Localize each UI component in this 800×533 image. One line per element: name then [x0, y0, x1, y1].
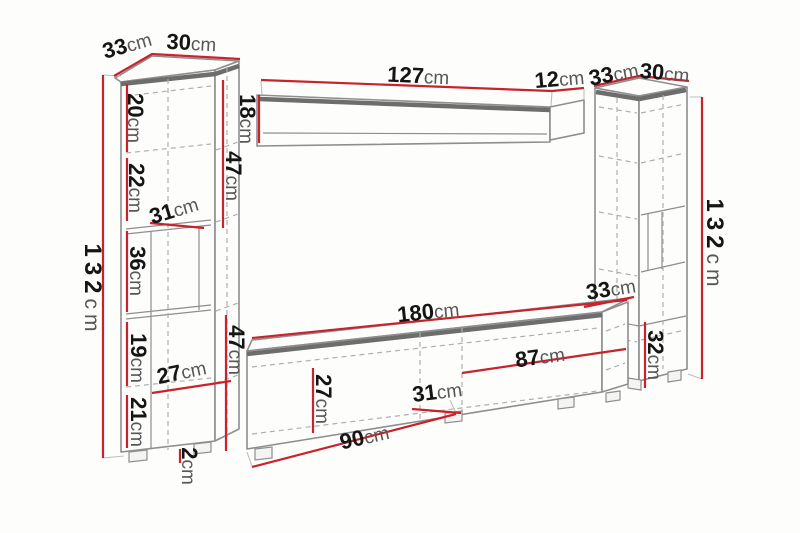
diagram-canvas: 33cm 30cm 132cm 20cm 22cm 31cm 36cm 19cm…	[0, 0, 800, 533]
furniture-dimension-diagram: 33cm 30cm 132cm 20cm 22cm 31cm 36cm 19cm…	[0, 0, 800, 533]
dim-left-cabinet-plinth: 2cm	[177, 447, 202, 485]
wall-shelf-drawing	[257, 95, 584, 146]
dim-wall-shelf-depth: 12cm	[533, 64, 585, 93]
dim-left-cabinet-section-5: 21cm	[126, 397, 151, 447]
dim-right-cabinet-width-top: 30cm	[639, 58, 691, 87]
dim-left-cabinet-upper-section: 47cm	[221, 151, 246, 201]
tv-stand-side-face	[602, 302, 628, 392]
dim-left-cabinet-width-top: 30cm	[166, 29, 217, 57]
dim-left-cabinet-section-3: 36cm	[125, 246, 150, 296]
dim-right-cabinet-height: 132cm	[701, 198, 728, 291]
dim-left-cabinet-section-1: 20cm	[123, 93, 148, 143]
dim-tv-stand-height: 47cm	[224, 325, 249, 375]
dim-tv-stand-front-height: 27cm	[311, 374, 336, 424]
dim-wall-shelf-width: 127cm	[387, 62, 450, 90]
right-extension-ticks	[688, 97, 702, 379]
dim-left-cabinet-height: 132cm	[79, 243, 106, 336]
dim-right-cabinet-base-section: 32cm	[643, 330, 668, 380]
dim-wall-shelf-height: 18cm	[235, 94, 260, 144]
dim-left-cabinet-section-2: 22cm	[124, 163, 149, 213]
dim-left-cabinet-section-4: 19cm	[126, 333, 151, 383]
